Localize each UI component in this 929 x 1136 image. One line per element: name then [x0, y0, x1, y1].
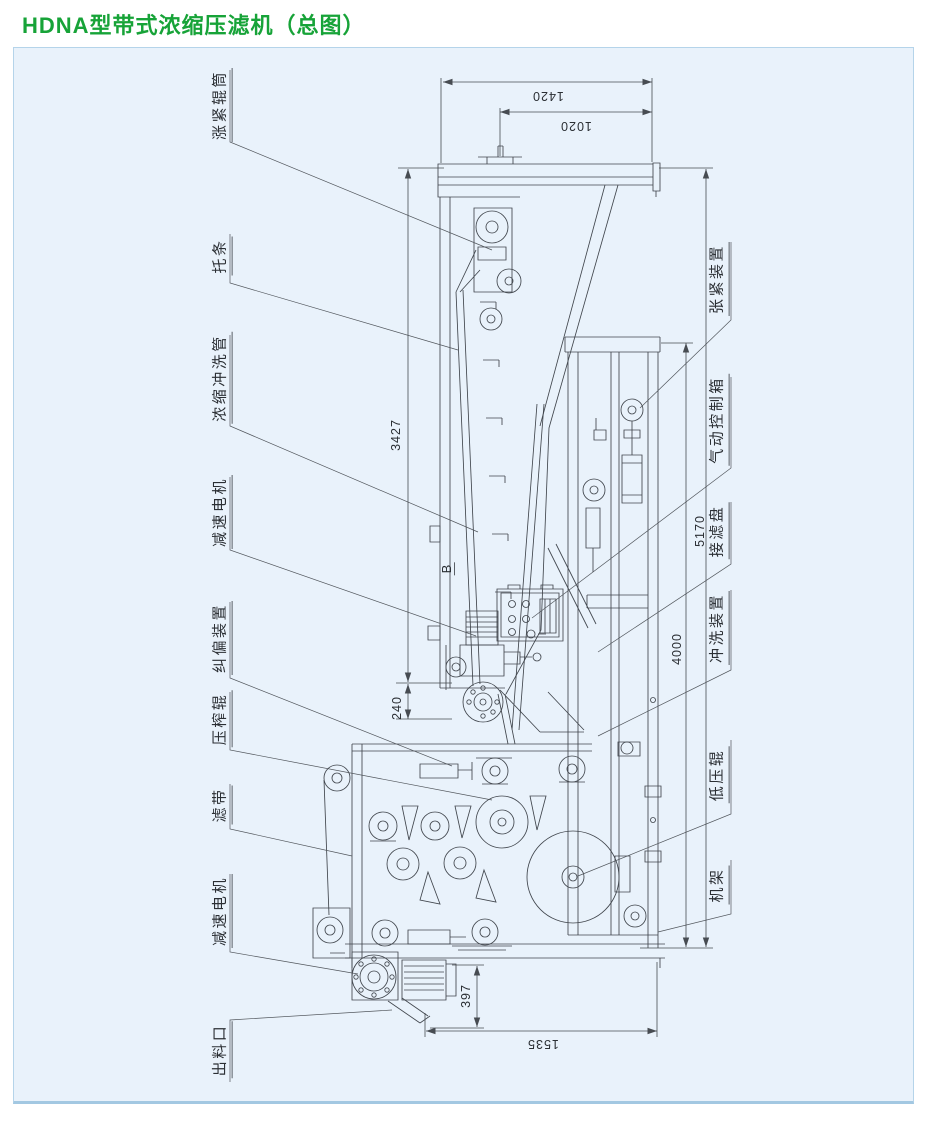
label-discharge-outlet: 出料口 — [212, 1022, 233, 1079]
label-tension-roller-drum: 涨紧辊筒 — [212, 68, 233, 142]
dim-3427: 3427 — [389, 419, 403, 451]
dim-1535: 1535 — [527, 1037, 559, 1051]
label-support-bar: 托条 — [212, 236, 233, 275]
label-machine-frame: 机架 — [709, 865, 730, 904]
label-gear-motor-upper: 减速电机 — [212, 475, 233, 549]
label-filter-belt: 滤带 — [212, 785, 233, 824]
label-flushing-device: 冲洗装置 — [709, 591, 730, 665]
dim-397: 397 — [459, 984, 473, 1008]
label-low-pressure-roller: 低压辊 — [709, 747, 730, 804]
section-marker-b: B — [439, 563, 455, 576]
label-gear-motor-lower: 减速电机 — [212, 874, 233, 948]
machine-outline — [313, 146, 665, 1023]
dim-4000: 4000 — [670, 633, 684, 665]
page: { "title": "HDNA型带式浓缩压滤机（总图）", "colors":… — [0, 0, 929, 1136]
label-filtrate-tray: 接滤盘 — [709, 503, 730, 560]
label-belt-alignment-device: 纠偏装置 — [212, 601, 233, 675]
dim-1020: 1020 — [560, 119, 592, 133]
label-tensioning-device: 张紧装置 — [709, 242, 730, 316]
label-pneumatic-control-box: 气动控制箱 — [709, 374, 730, 466]
label-thickening-flush-pipe: 浓缩冲洗管 — [212, 332, 233, 424]
label-press-roller: 压榨辊 — [212, 691, 233, 748]
dim-1420: 1420 — [532, 89, 564, 103]
machine-line-drawing — [0, 0, 929, 1136]
dim-240: 240 — [390, 696, 404, 720]
dimension-lines — [396, 78, 713, 1037]
dim-5170: 5170 — [693, 515, 707, 547]
